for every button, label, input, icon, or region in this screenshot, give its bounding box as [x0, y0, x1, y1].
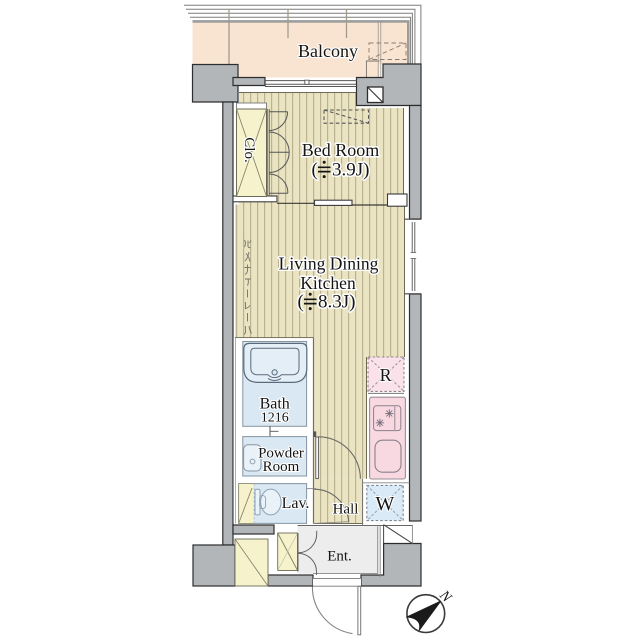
svg-text:Ent.: Ent. [327, 549, 352, 565]
svg-text:Lav.: Lav. [282, 495, 310, 512]
svg-text:8.3J): 8.3J) [318, 292, 355, 313]
svg-text:(: ( [312, 160, 318, 181]
svg-text:Room: Room [263, 459, 300, 475]
svg-text:W: W [375, 493, 394, 515]
svg-text:Bed Room: Bed Room [302, 140, 380, 160]
svg-text:Living Dining: Living Dining [279, 254, 379, 274]
svg-text:Balcony: Balcony [298, 41, 358, 61]
svg-text:Clo.: Clo. [241, 137, 257, 162]
svg-text:Hall: Hall [333, 502, 359, 518]
svg-text:R: R [380, 365, 392, 385]
svg-text:1216: 1216 [261, 411, 289, 426]
svg-text:(: ( [298, 292, 304, 313]
svg-text:3.9J): 3.9J) [332, 160, 369, 181]
svg-text:Kitchen: Kitchen [300, 273, 356, 293]
